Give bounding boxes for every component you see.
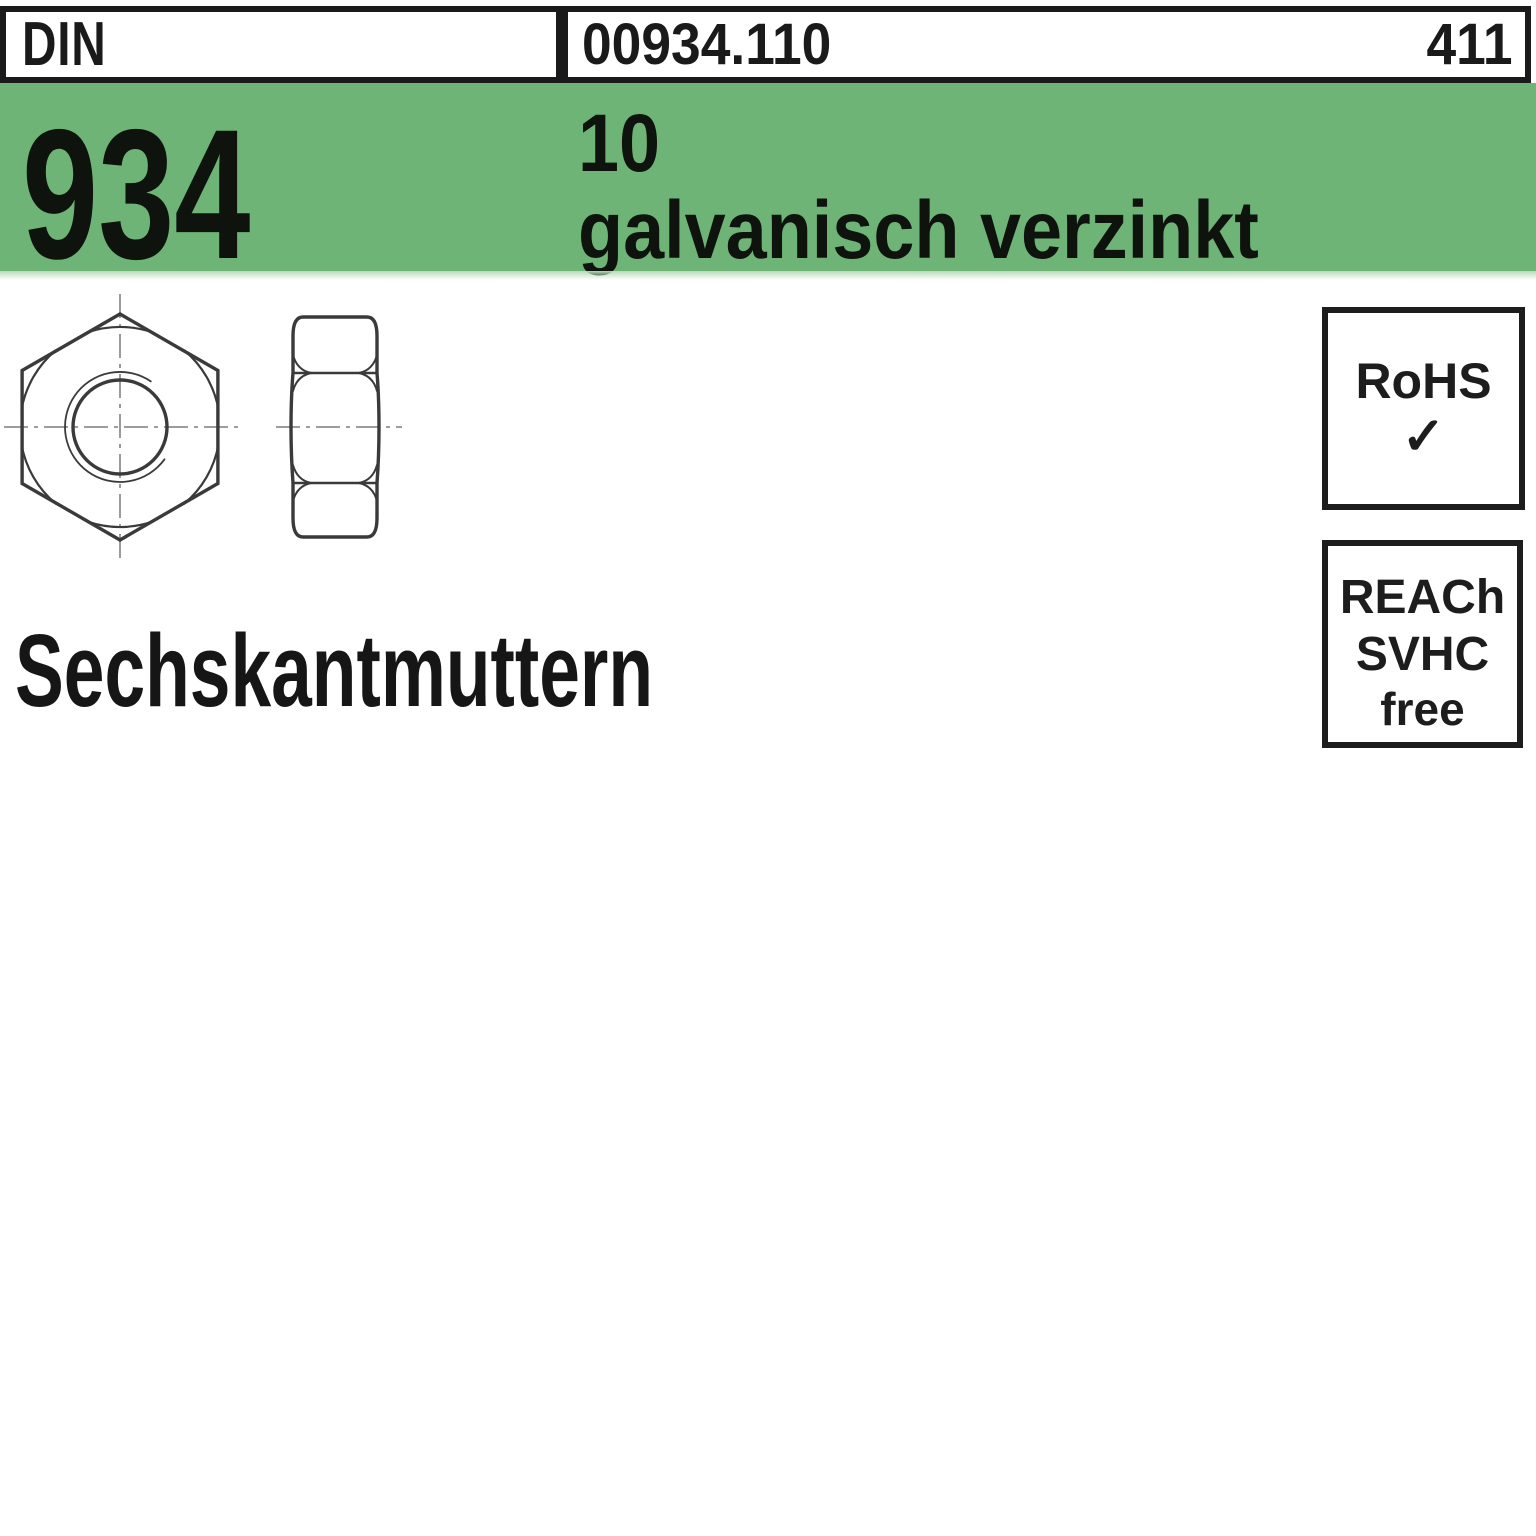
check-icon: ✓ <box>1402 414 1446 461</box>
page-number: 411 <box>1427 16 1513 74</box>
header-article-box: 00934.110 411 <box>562 6 1531 83</box>
centerlines-icon <box>4 294 402 560</box>
product-title: Sechskantmuttern <box>15 619 653 722</box>
catalog-page: DIN 00934.110 411 934 10 galvanisch verz… <box>0 0 1536 1536</box>
header-din-box: DIN <box>0 6 562 83</box>
property-class: 10 <box>578 103 660 185</box>
article-number: 00934.110 <box>582 16 831 74</box>
rohs-label: RoHS <box>1355 356 1491 406</box>
din-label: DIN <box>22 14 107 76</box>
green-banner: 934 10 galvanisch verzinkt <box>0 83 1536 271</box>
free-label: free <box>1380 683 1464 736</box>
standard-number: 934 <box>22 103 250 288</box>
banner-bottom-fade <box>0 271 1536 280</box>
surface-finish-label: galvanisch verzinkt <box>578 190 1259 272</box>
technical-drawing <box>0 280 450 580</box>
svhc-label: SVHC <box>1356 627 1489 684</box>
reach-badge: REACh SVHC free <box>1322 540 1523 748</box>
reach-label: REACh <box>1340 570 1505 627</box>
rohs-badge: RoHS ✓ <box>1322 307 1525 510</box>
